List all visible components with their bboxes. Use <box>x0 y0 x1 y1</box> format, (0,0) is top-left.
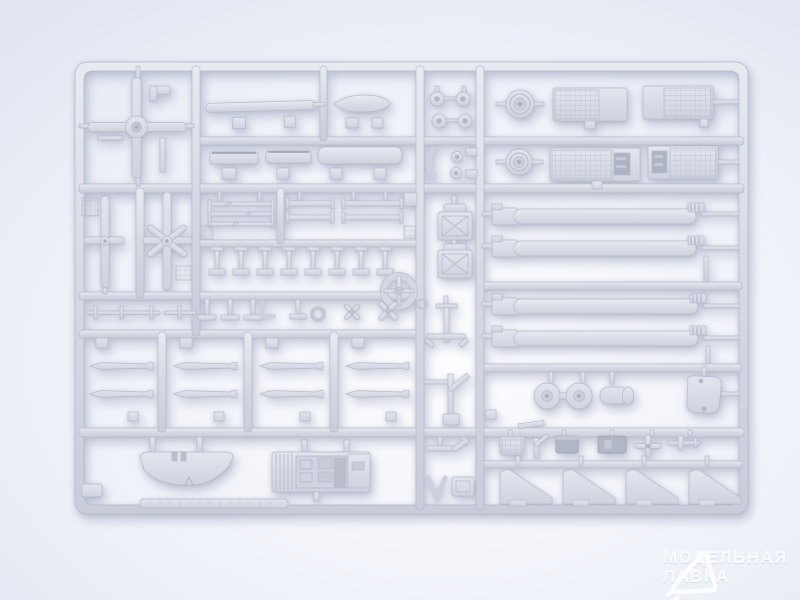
road-wheel-bottom-part <box>496 149 543 175</box>
small-bottom-center-parts <box>426 437 474 498</box>
antenna-pins-row-part <box>88 299 398 321</box>
stabilizer-wing-part <box>140 437 233 485</box>
clamp-row-part <box>209 247 393 275</box>
strip-blade-part <box>206 100 326 129</box>
road-wheel-top-part <box>496 90 544 118</box>
pilot-seats-part <box>438 196 472 278</box>
twin-wheel-bogie-part <box>534 372 592 409</box>
curved-bracket-knobs-part <box>429 148 477 179</box>
cylinder-drum-part <box>600 372 634 404</box>
tail-rotor-2-part <box>143 192 192 290</box>
radiator-grilles-top-part <box>553 86 739 129</box>
radiator-grilles-bottom-part <box>550 146 739 189</box>
sprue-photo-illustration <box>0 0 800 600</box>
embossed-label-strip-part <box>82 484 288 508</box>
wheel-hub-discs-part <box>430 86 472 128</box>
gearbox-housing-part <box>687 366 739 413</box>
tail-rotor-1-part <box>82 196 124 294</box>
sprue <box>75 62 748 514</box>
photo-backdrop: МОДЕЛЬНАЯ ЛАВКА <box>0 0 800 600</box>
beam-rails-part <box>286 192 403 223</box>
cockpit-tub-part <box>272 440 370 501</box>
main-rotor-part <box>79 66 194 186</box>
rod-rack-part <box>208 192 274 228</box>
anchor-bracket-part <box>424 296 468 347</box>
exhaust-pipes-part <box>210 147 402 179</box>
fuel-tank-half-part <box>334 95 391 128</box>
